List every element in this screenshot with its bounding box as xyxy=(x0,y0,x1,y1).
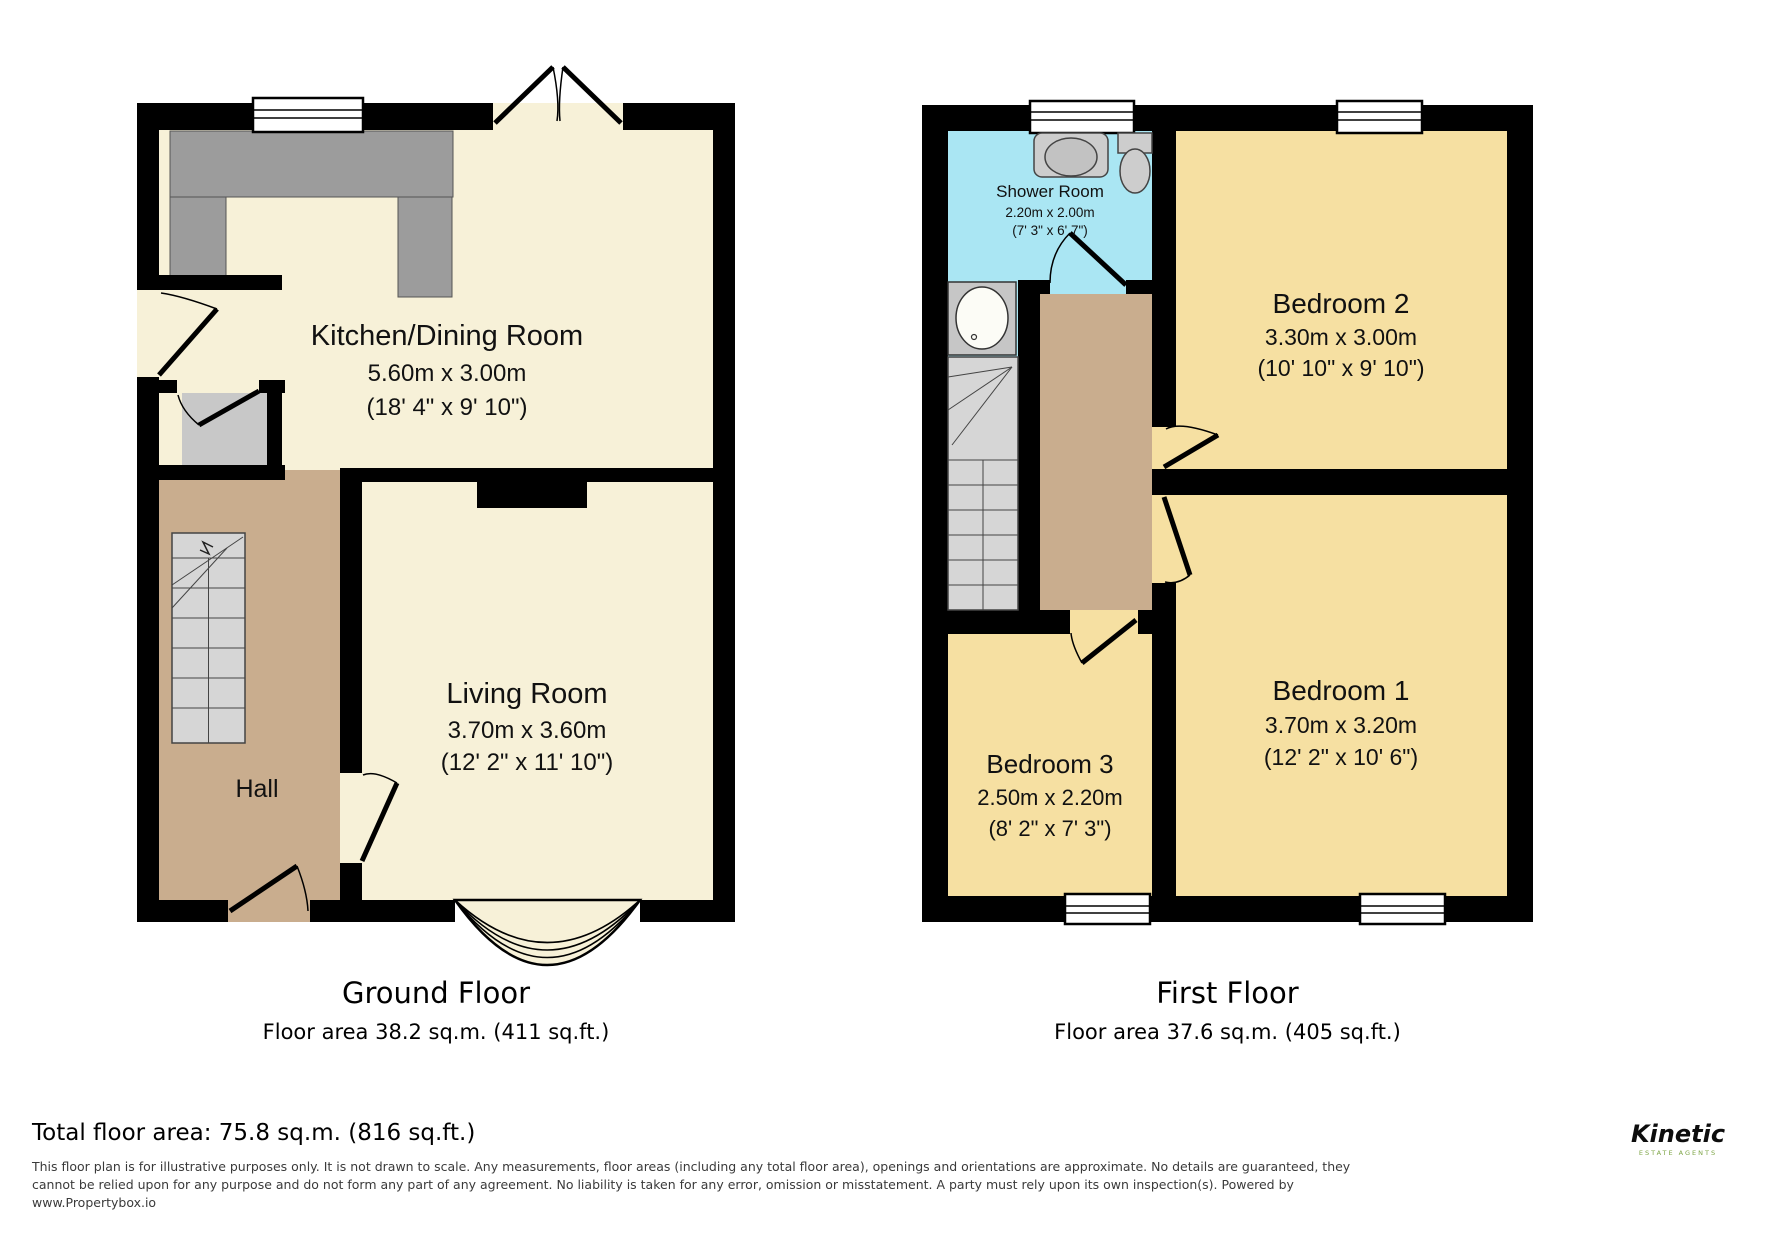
shower-room-dims-metric: 2.20m x 2.00m xyxy=(1005,205,1094,220)
bath-icon xyxy=(948,282,1016,355)
ground-floor-caption: Ground Floor Floor area 38.2 sq.m. (411 … xyxy=(137,978,735,1044)
ground-floor-area: Floor area 38.2 sq.m. (411 sq.ft.) xyxy=(137,1020,735,1044)
floorplan-page: Kitchen/Dining Room 5.60m x 3.00m (18' 4… xyxy=(0,0,1771,1239)
bedroom3-window xyxy=(1065,894,1150,924)
bedroom2-dims-metric: 3.30m x 3.00m xyxy=(1265,324,1417,350)
kitchen-label: Kitchen/Dining Room xyxy=(311,320,583,352)
french-doors xyxy=(493,67,623,130)
bedroom1-label: Bedroom 1 xyxy=(1273,675,1410,706)
first-floor-caption: First Floor Floor area 37.6 sq.m. (405 s… xyxy=(922,978,1533,1044)
first-floor-area: Floor area 37.6 sq.m. (405 sq.ft.) xyxy=(922,1020,1533,1044)
bedroom1-dims-metric: 3.70m x 3.20m xyxy=(1265,712,1417,738)
ground-floor-title: Ground Floor xyxy=(137,978,735,1010)
sink-icon xyxy=(1034,133,1108,177)
total-floor-area: Total floor area: 75.8 sq.m. (816 sq.ft.… xyxy=(32,1120,475,1146)
kitchen-window xyxy=(253,98,363,132)
ground-floor-plan: Kitchen/Dining Room 5.60m x 3.00m (18' 4… xyxy=(137,58,735,983)
kinetic-logo-tagline: ESTATE AGENTS xyxy=(1628,1149,1728,1157)
first-floor-title: First Floor xyxy=(922,978,1533,1010)
bedroom3-label: Bedroom 3 xyxy=(986,749,1113,779)
chimney-breast xyxy=(477,482,587,508)
living-room-dims-metric: 3.70m x 3.60m xyxy=(448,717,607,744)
kitchen-dims-imperial: (18' 4" x 9' 10") xyxy=(367,394,528,421)
disclaimer-text: This floor plan is for illustrative purp… xyxy=(32,1158,1377,1211)
bedroom1-dims-imperial: (12' 2" x 10' 6") xyxy=(1264,744,1418,770)
back-door-opening xyxy=(137,290,159,377)
bedroom3-dims-metric: 2.50m x 2.20m xyxy=(977,785,1123,810)
living-room-dims-imperial: (12' 2" x 11' 10") xyxy=(441,749,614,776)
kinetic-logo: Kinetic ESTATE AGENTS xyxy=(1628,1120,1728,1157)
first-floor-plan: Shower Room 2.20m x 2.00m (7' 3" x 6' 7"… xyxy=(922,97,1533,927)
kitchen-dims-metric: 5.60m x 3.00m xyxy=(368,360,527,387)
kinetic-logo-text: Kinetic xyxy=(1631,1120,1725,1148)
staircase-ground xyxy=(172,533,245,743)
hall-label: Hall xyxy=(235,775,278,803)
bedroom3-dims-imperial: (8' 2" x 7' 3") xyxy=(988,816,1111,841)
kinetic-logo-wordmark: Kinetic xyxy=(1631,1120,1725,1148)
living-room-label: Living Room xyxy=(446,678,607,710)
shower-room-label: Shower Room xyxy=(996,182,1104,201)
bay-window xyxy=(455,900,640,965)
staircase-first xyxy=(948,357,1018,610)
bedroom1-window xyxy=(1360,894,1445,924)
store-room-floor xyxy=(182,393,267,465)
bedroom2-dims-imperial: (10' 10" x 9' 10") xyxy=(1257,355,1424,381)
shower-room-window xyxy=(1030,101,1134,133)
bedroom2-label: Bedroom 2 xyxy=(1273,288,1410,319)
toilet-icon xyxy=(1118,133,1152,193)
shower-room-dims-imperial: (7' 3" x 6' 7") xyxy=(1012,223,1088,238)
bedroom2-window xyxy=(1337,101,1422,133)
landing-floor xyxy=(1040,294,1152,610)
